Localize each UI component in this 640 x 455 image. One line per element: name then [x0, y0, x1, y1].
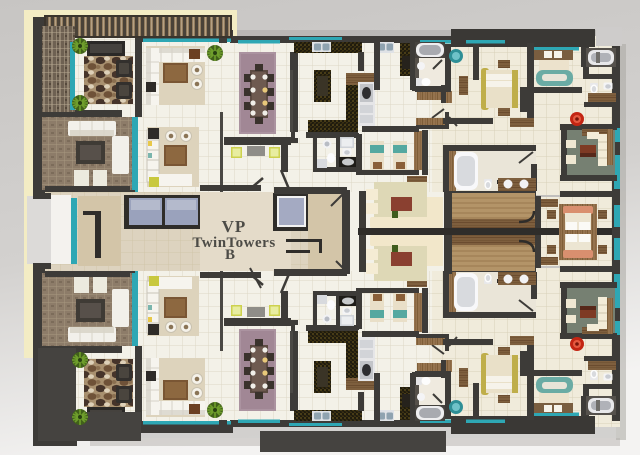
- svg-text:VP: VP: [222, 217, 247, 236]
- svg-text:B: B: [225, 247, 235, 263]
